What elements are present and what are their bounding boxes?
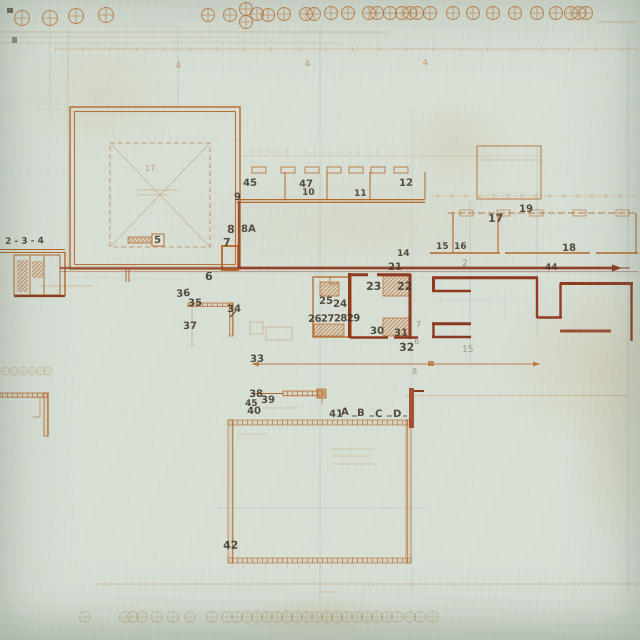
grid-bubble — [371, 7, 384, 20]
grid-bubble — [580, 7, 593, 20]
grid-bubble — [202, 9, 215, 22]
grid-bubble — [252, 612, 263, 623]
grid-bubble — [362, 612, 373, 623]
grid-bubble — [467, 7, 480, 20]
grid-bubble — [19, 367, 27, 375]
grid-bubble — [428, 612, 439, 623]
grid-bubble — [10, 367, 18, 375]
grid-bubble — [282, 612, 293, 623]
grid-bubble — [43, 11, 58, 26]
grid-bubble — [342, 612, 353, 623]
grid-bubble — [185, 612, 196, 623]
grid-bubble — [1, 367, 9, 375]
column-grid-markers-left — [1, 367, 52, 375]
blueprint-canvas: 2 - 3 - 456788A9454710111214171915161844… — [0, 0, 640, 640]
grid-bubble — [207, 612, 218, 623]
grid-bubble — [152, 612, 163, 623]
grid-bubble — [447, 7, 460, 20]
grid-bubble — [44, 367, 52, 375]
grid-bubble — [308, 8, 321, 21]
grid-bubble — [325, 7, 338, 20]
grid-bubble — [262, 9, 275, 22]
grid-bubble — [302, 612, 313, 623]
grid-bubble — [28, 367, 36, 375]
grid-bubble — [262, 612, 273, 623]
orange-walls — [0, 107, 638, 563]
grid-bubble — [292, 612, 303, 623]
grid-bubble — [272, 612, 283, 623]
grid-bubble — [392, 612, 403, 623]
grid-bubble — [411, 7, 424, 20]
grid-bubble — [137, 612, 148, 623]
measure-arrow-33 — [252, 361, 540, 367]
grid-bubble — [242, 612, 253, 623]
grid-bubble — [384, 7, 397, 20]
grid-bubble — [382, 612, 393, 623]
grid-bubble — [99, 8, 114, 23]
grid-bubble — [531, 7, 544, 20]
grid-bubble — [69, 9, 84, 24]
registration-marks — [7, 8, 17, 43]
column-grid-markers-bottom — [80, 612, 439, 623]
grid-bubble — [15, 11, 30, 26]
grid-bubble — [550, 7, 563, 20]
grid-bubble — [372, 612, 383, 623]
grid-bubble — [312, 612, 323, 623]
grid-bubble — [352, 612, 363, 623]
column-grid-markers-top — [15, 3, 593, 29]
grid-bubble — [278, 8, 291, 21]
grid-bubble — [509, 7, 522, 20]
grid-bubble — [80, 612, 91, 623]
grid-bubble — [405, 612, 416, 623]
floor-plan-drawing — [0, 0, 640, 640]
grid-bubble — [232, 612, 243, 623]
grid-bubble — [487, 7, 500, 20]
grid-bubble — [224, 9, 237, 22]
grid-bubble — [332, 612, 343, 623]
grid-bubble — [168, 612, 179, 623]
grid-bubble — [240, 16, 253, 29]
grid-bubble — [342, 7, 355, 20]
grid-bubble — [424, 7, 437, 20]
grid-bubble — [322, 612, 333, 623]
grid-bubble — [415, 612, 426, 623]
grid-bubble — [222, 612, 233, 623]
